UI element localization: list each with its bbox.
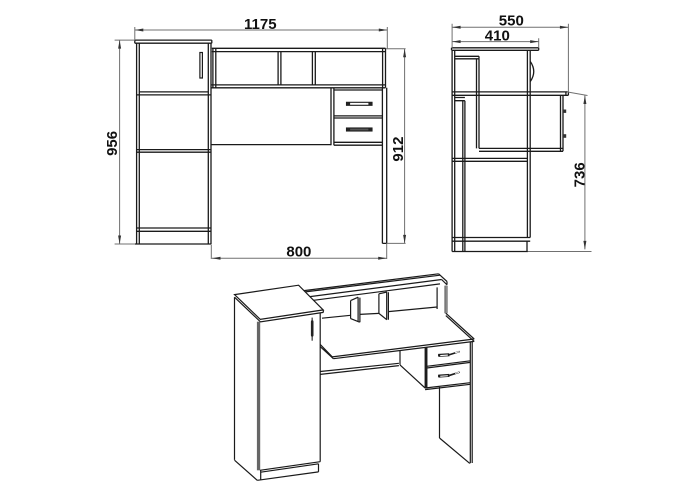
svg-text:956: 956	[104, 131, 121, 156]
svg-text:912: 912	[390, 137, 407, 162]
svg-text:1175: 1175	[244, 16, 277, 33]
svg-text:800: 800	[286, 243, 311, 260]
svg-text:736: 736	[571, 162, 588, 187]
svg-text:410: 410	[485, 27, 510, 44]
